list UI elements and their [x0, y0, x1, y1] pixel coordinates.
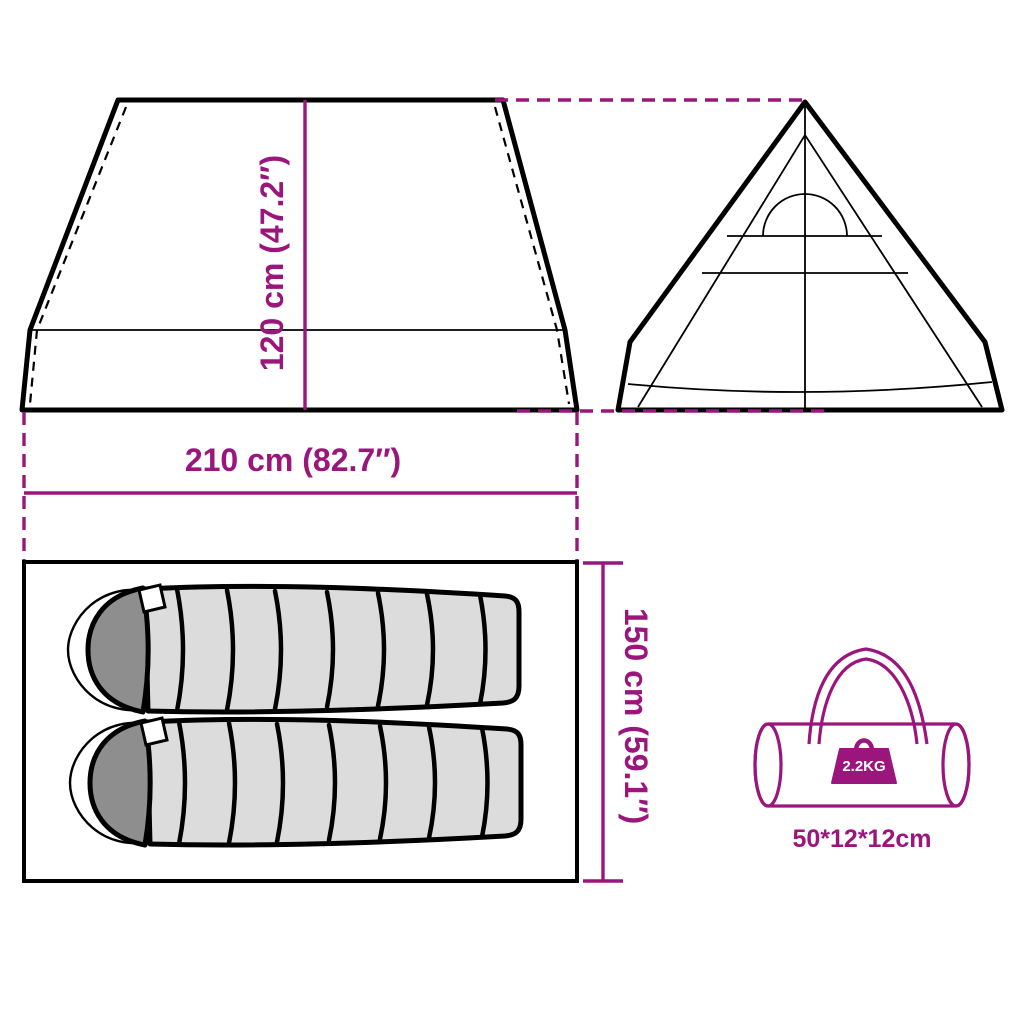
carry-bag-size-label: 50*12*12cm: [712, 822, 1012, 856]
floor-plan-icon: [24, 562, 577, 881]
tent-front-view-icon: [618, 102, 1002, 410]
sleeping-bag-icon: [68, 585, 519, 712]
side-view-outline: [22, 100, 577, 410]
sleeping-bag-icon-2: [70, 718, 521, 845]
height-dimension-label: 120 cm (47.2″): [252, 103, 292, 423]
depth-dimension-label: 150 cm (59.1″): [616, 556, 656, 876]
carry-bag-weight-label: 2.2KG: [814, 753, 914, 779]
width-dimension-label: 210 cm (82.7″): [143, 440, 443, 480]
product-diagram: 120 cm (47.2″) 210 cm (82.7″) 150 cm (59…: [0, 0, 1024, 1024]
carry-bag-icon: [755, 649, 969, 806]
diagram-canvas: [0, 0, 1024, 1024]
sleeping-bag-tag: [139, 585, 165, 612]
front-view-outline: [618, 102, 1002, 410]
tent-side-view-icon: [22, 100, 577, 410]
